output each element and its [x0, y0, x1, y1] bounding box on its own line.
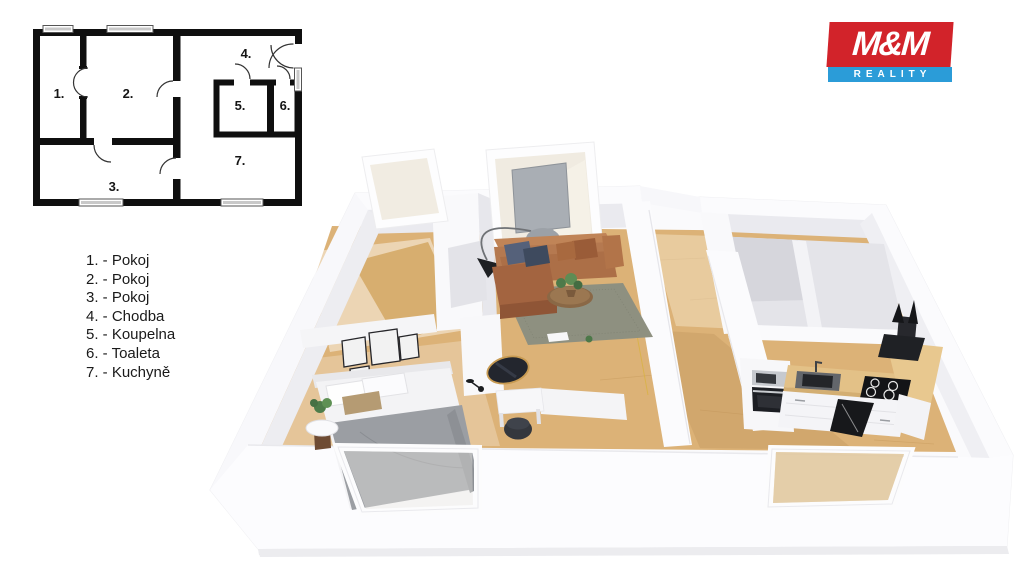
floorplan-3d — [0, 0, 1024, 576]
rug-plant — [586, 336, 593, 343]
pouf — [504, 418, 532, 440]
microwave — [752, 370, 787, 387]
front-window-bedroom — [338, 447, 478, 512]
sofa-pillow-brown — [572, 238, 598, 260]
back-window-small — [362, 149, 448, 229]
sofa-pillow-brown-2 — [556, 241, 576, 261]
